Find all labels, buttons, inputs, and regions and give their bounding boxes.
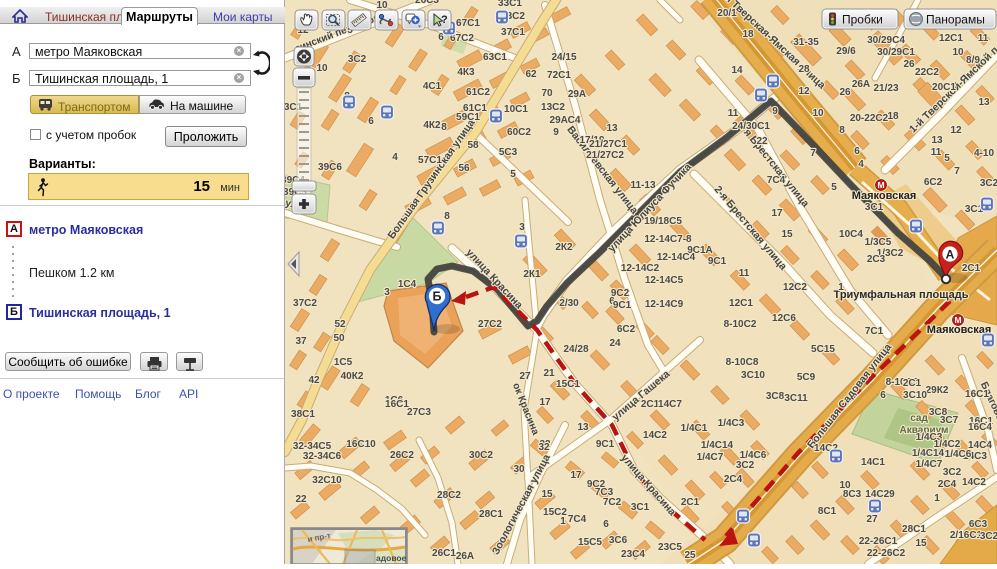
svg-text:62: 62 [525,69,537,80]
svg-text:3С2: 3С2 [348,54,367,65]
svg-text:15С1: 15С1 [556,379,580,390]
svg-text:61С2: 61С2 [466,87,490,98]
svg-text:8С3: 8С3 [843,489,862,500]
svg-text:18: 18 [887,111,899,122]
svg-text:Пробки: Пробки [842,13,883,27]
svg-text:А: А [946,248,955,262]
svg-text:50: 50 [333,333,345,344]
svg-text:13: 13 [978,97,990,108]
svg-text:10: 10 [812,108,824,119]
svg-text:16С1: 16С1 [385,399,409,410]
svg-text:2С1: 2С1 [903,378,922,389]
svg-text:7С4: 7С4 [767,175,786,186]
svg-text:13: 13 [931,135,943,146]
svg-text:63С1: 63С1 [483,52,507,63]
svg-text:3С8: 3С8 [766,391,785,402]
svg-text:2К1: 2К1 [523,269,541,280]
svg-text:13: 13 [606,123,618,134]
svg-text:1/4С6: 1/4С6 [945,449,972,460]
svg-text:32С10: 32С10 [312,475,342,486]
svg-text:27: 27 [866,514,878,525]
svg-text:11: 11 [728,108,739,119]
svg-text:12-14С5: 12-14С5 [645,275,684,286]
svg-text:32-34С6: 32-34С6 [303,451,342,462]
svg-text:6: 6 [603,519,609,530]
svg-text:15С5: 15С5 [578,537,602,548]
svg-text:3С1: 3С1 [631,502,650,513]
svg-text:2/16С1: 2/16С1 [950,530,983,541]
svg-text:29/6: 29/6 [836,46,856,57]
svg-text:18: 18 [742,29,754,40]
svg-text:22С2: 22С2 [915,67,939,78]
svg-text:37: 37 [295,336,307,347]
svg-text:11: 11 [978,33,989,44]
svg-text:31-35: 31-35 [793,37,819,48]
svg-text:12-14С9: 12-14С9 [645,299,684,310]
svg-text:7: 7 [954,166,960,177]
svg-text:10: 10 [316,63,328,74]
svg-text:12С2: 12С2 [783,282,807,293]
svg-text:26С2: 26С2 [390,450,414,461]
svg-text:17: 17 [539,397,551,408]
svg-text:4С1: 4С1 [423,81,442,92]
svg-text:3С10: 3С10 [903,390,927,401]
svg-text:26: 26 [903,59,915,70]
svg-text:26С1: 26С1 [432,548,456,559]
svg-text:6: 6 [854,146,860,157]
svg-text:14С1: 14С1 [861,457,885,468]
svg-text:5С9: 5С9 [797,372,816,383]
svg-text:17: 17 [771,208,783,219]
svg-text:23С4: 23С4 [621,549,645,560]
svg-text:9: 9 [553,127,559,138]
svg-text:24: 24 [609,338,621,349]
svg-text:22: 22 [295,494,307,505]
svg-text:3С11: 3С11 [784,393,808,404]
svg-text:8С1: 8С1 [818,506,837,517]
svg-text:16С1: 16С1 [965,389,989,400]
svg-text:14: 14 [731,65,743,76]
svg-text:14С2: 14С2 [962,477,986,488]
svg-text:14С4: 14С4 [968,440,992,451]
svg-text:30С2: 30С2 [469,450,493,461]
svg-text:52: 52 [334,319,346,330]
svg-text:57С1: 57С1 [418,155,442,166]
svg-text:56: 56 [458,163,470,174]
svg-text:?: ? [441,14,448,26]
svg-text:1: 1 [934,493,940,504]
svg-text:7С2: 7С2 [603,497,622,508]
svg-text:3: 3 [384,287,390,298]
svg-text:24/30С1: 24/30С1 [732,121,770,132]
svg-text:60С2: 60С2 [507,127,531,138]
svg-text:26А: 26А [456,551,474,562]
svg-text:Маяковская: Маяковская [852,190,917,202]
svg-text:1С4: 1С4 [398,279,417,290]
svg-text:4-10: 4-10 [974,148,994,159]
svg-text:6С3: 6С3 [969,519,988,530]
svg-text:8: 8 [444,211,450,222]
svg-text:20С1: 20С1 [932,82,956,93]
svg-text:16С4: 16С4 [968,422,992,433]
svg-text:11: 11 [739,268,750,279]
svg-text:3С2: 3С2 [980,531,997,542]
svg-text:26: 26 [839,87,851,98]
svg-text:14С7: 14С7 [658,399,682,410]
svg-text:6С2: 6С2 [924,177,943,188]
svg-text:2С4: 2С4 [938,479,957,490]
svg-text:10: 10 [952,47,964,58]
svg-text:2С1: 2С1 [641,399,660,410]
svg-text:9С1: 9С1 [613,300,632,311]
svg-text:3С2: 3С2 [736,460,755,471]
svg-text:11-13: 11-13 [630,180,655,191]
svg-text:2С1: 2С1 [962,263,981,274]
svg-text:5: 5 [510,169,516,180]
svg-text:4: 4 [392,152,398,163]
svg-text:28С1: 28С1 [479,509,503,520]
svg-text:2С4: 2С4 [724,474,743,485]
svg-text:20-22С2: 20-22С2 [850,113,889,124]
svg-text:10С4: 10С4 [839,229,863,240]
svg-text:3С2: 3С2 [943,467,962,478]
svg-text:6: 6 [880,390,886,401]
svg-text:67С1: 67С1 [456,18,480,29]
svg-text:1/4С7: 1/4С7 [916,459,943,470]
svg-text:3С7: 3С7 [940,415,959,426]
svg-text:5: 5 [944,153,950,164]
svg-text:2К2: 2К2 [555,242,573,253]
svg-text:12С1: 12С1 [729,298,753,309]
svg-text:32: 32 [538,442,550,453]
svg-text:2С3: 2С3 [867,254,886,265]
svg-text:24/15: 24/15 [551,52,576,63]
svg-text:59С1: 59С1 [456,112,480,123]
svg-text:3С1: 3С1 [865,202,884,213]
svg-text:21/23: 21/23 [873,83,898,94]
svg-text:37С2: 37С2 [293,298,317,309]
svg-text:21/27С1: 21/27С1 [589,139,627,150]
svg-text:4: 4 [858,159,864,170]
svg-text:25: 25 [684,550,696,561]
svg-text:22: 22 [756,136,768,147]
svg-text:33С1: 33С1 [498,0,522,9]
svg-text:39С6: 39С6 [318,162,342,173]
svg-text:27С2: 27С2 [478,319,502,330]
svg-text:26С3: 26С3 [415,0,439,6]
svg-text:28С2: 28С2 [437,490,461,501]
svg-text:адовое: адовое [376,553,407,563]
svg-text:28С1: 28С1 [902,524,926,535]
svg-text:20/1: 20/1 [717,8,737,19]
svg-text:12: 12 [798,86,810,97]
svg-text:8: 8 [441,122,447,133]
svg-text:6С2: 6С2 [617,324,636,335]
svg-text:1/4С7: 1/4С7 [697,452,724,463]
svg-text:3С6: 3С6 [609,535,628,546]
svg-text:12-14С4: 12-14С4 [657,252,696,263]
svg-text:10: 10 [376,0,388,11]
svg-text:42: 42 [308,375,320,386]
svg-text:70: 70 [541,88,553,99]
svg-text:9С2: 9С2 [611,288,630,299]
svg-text:29АС4: 29АС4 [550,115,581,126]
svg-text:28: 28 [798,64,810,75]
svg-text:30: 30 [513,464,525,475]
svg-text:5: 5 [831,182,837,193]
svg-text:6: 6 [368,116,374,127]
svg-text:15: 15 [541,489,553,500]
svg-text:4К3: 4К3 [457,67,475,78]
svg-text:21: 21 [543,368,555,379]
svg-text:11: 11 [931,147,942,158]
svg-text:27: 27 [519,371,531,382]
svg-text:12-14С7-8: 12-14С7-8 [644,234,692,245]
svg-text:13: 13 [577,422,589,433]
svg-text:3: 3 [519,222,525,233]
svg-text:13С2: 13С2 [541,102,565,113]
svg-text:7С4: 7С4 [568,514,587,525]
svg-text:2С1: 2С1 [681,497,700,508]
svg-text:7С1: 7С1 [865,326,884,337]
svg-text:12С1: 12С1 [939,33,963,44]
svg-text:29А: 29А [568,89,586,100]
svg-text:24/28: 24/28 [563,344,588,355]
svg-text:19/18С5: 19/18С5 [644,216,682,227]
svg-text:Б: Б [433,290,442,304]
svg-text:4К2: 4К2 [423,120,441,131]
svg-text:15: 15 [915,538,927,549]
svg-text:37С1: 37С1 [501,27,525,38]
svg-text:9С1: 9С1 [708,256,727,267]
svg-text:14С29: 14С29 [865,489,895,500]
svg-text:12-14С2: 12-14С2 [621,263,660,274]
svg-text:12: 12 [950,125,962,136]
svg-text:8-10С2: 8-10С2 [724,319,757,330]
svg-text:26А: 26А [852,79,870,90]
svg-text:9: 9 [772,106,778,117]
svg-text:40К2: 40К2 [341,371,364,382]
svg-text:72С1: 72С1 [547,70,571,81]
svg-text:21/27С2: 21/27С2 [586,150,624,161]
svg-text:29К2: 29К2 [926,385,949,396]
svg-text:8/9: 8/9 [966,55,980,66]
svg-text:23С5: 23С5 [658,542,682,553]
svg-text:22-26С1: 22-26С1 [859,536,898,547]
svg-text:7: 7 [810,148,816,159]
svg-text:Триумфальная площадь: Триумфальная площадь [834,289,969,301]
svg-text:30/29С4: 30/29С4 [867,35,905,46]
svg-text:М: М [877,180,884,190]
svg-text:30/29С1: 30/29С1 [877,47,915,58]
svg-text:1/4С1: 1/4С1 [681,423,708,434]
svg-text:38С1: 38С1 [291,409,315,420]
svg-text:сад: сад [910,413,928,424]
svg-text:Панорамы: Панорамы [926,13,985,27]
svg-text:3С2: 3С2 [980,178,997,189]
svg-text:17: 17 [570,470,582,481]
svg-text:22-26С2: 22-26С2 [867,548,906,559]
svg-text:14С2: 14С2 [643,430,667,441]
svg-text:5С15: 5С15 [811,344,835,355]
svg-text:8-10С8: 8-10С8 [726,357,759,368]
svg-text:8: 8 [839,125,845,136]
svg-text:16С10: 16С10 [346,439,376,450]
svg-text:2/30: 2/30 [559,298,579,309]
svg-text:27С3: 27С3 [407,407,431,418]
svg-text:1/4С14: 1/4С14 [701,440,734,451]
svg-text:1: 1 [838,282,844,293]
svg-text:58: 58 [467,140,479,151]
svg-text:5С3: 5С3 [499,147,518,158]
svg-text:1/3С5: 1/3С5 [865,237,892,248]
svg-text:10С1: 10С1 [504,104,528,115]
svg-text:9С1: 9С1 [596,439,615,450]
svg-text:М: М [954,315,961,325]
svg-text:3С10: 3С10 [741,370,765,381]
svg-text:12С6: 12С6 [772,313,796,324]
svg-text:1/4С14: 1/4С14 [912,448,945,459]
svg-text:1/4С3: 1/4С3 [718,418,745,429]
svg-text:1С5: 1С5 [334,357,353,368]
svg-text:15: 15 [781,229,793,240]
svg-text:1: 1 [560,516,566,527]
